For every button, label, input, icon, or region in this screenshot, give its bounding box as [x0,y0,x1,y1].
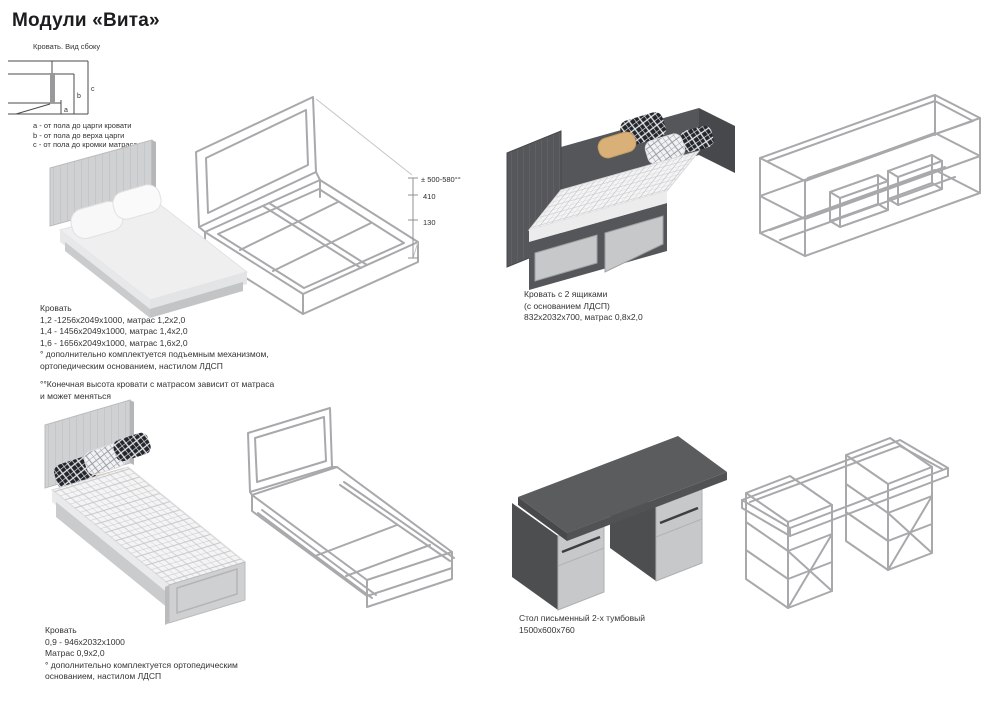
bed-single-render [20,395,270,635]
desk-spec: Стол письменный 2-х тумбовый 1500х600х76… [519,613,645,636]
size-line: 1,6 - 1656х2049х1000, матрас 1,6х2,0 [40,338,274,350]
note-line: ° дополнительно комплектуется ортопедиче… [45,660,238,672]
bed-drawers-wireframe [740,80,990,280]
bed-single-spec: Кровать 0,9 - 946х2032х1000 Матрас 0,9х2… [45,625,238,683]
bed-rail-mark [50,73,55,103]
dim-label-a: a [64,107,68,114]
bed-double-spec: Кровать 1,2 -1256х2049х1000, матрас 1,2х… [40,303,274,402]
dim-label-c: c [91,86,95,93]
product-title: Кровать [40,303,274,315]
spec-line: 0,9 - 946х2032х1000 [45,637,238,649]
legend-line: a - от пола до царги кровати [33,121,137,131]
note-line: °°Конечная высота кровати с матрасом зав… [40,379,274,391]
spec-line: 1500х600х760 [519,625,645,637]
bed-side-view-diagram: a b c [5,55,120,123]
desk-wireframe [730,405,975,620]
bed-drawers-render [505,105,745,295]
bed-drawers-spec: Кровать с 2 ящиками (с основанием ЛДСП) … [524,289,643,324]
size-line: 1,2 -1256х2049х1000, матрас 1,2х2,0 [40,315,274,327]
product-title: Кровать с 2 ящиками [524,289,643,301]
wireframe-dim-total: ± 500-580°° [421,175,461,184]
product-title: Стол письменный 2-х тумбовый [519,613,645,625]
note-line: ° дополнительно комплектуется подъемным … [40,349,274,361]
spec-line: Матрас 0,9х2,0 [45,648,238,660]
size-line: 1,4 - 1456х2049х1000, матрас 1,4х2,0 [40,326,274,338]
note-line: основанием, настилом ЛДСП [45,671,238,683]
wireframe-dim-low: 130 [423,218,436,227]
wireframe-dim-mid: 410 [423,192,436,201]
product-title: Кровать [45,625,238,637]
spec-line: 832х2032х700, матрас 0,8х2,0 [524,312,643,324]
desk-render [500,420,740,615]
note-line: ортопедическим основанием, настилом ЛДСП [40,361,274,373]
page-title: Модули «Вита» [12,10,160,32]
catalog-page: Модули «Вита» Кровать. Вид сбоку a b c a… [0,0,999,703]
footboard-edge [165,585,169,625]
spec-line: (с основанием ЛДСП) [524,301,643,313]
dim-label-b: b [77,93,81,100]
side-view-caption: Кровать. Вид сбоку [33,42,100,51]
bed-double-render [25,135,270,320]
